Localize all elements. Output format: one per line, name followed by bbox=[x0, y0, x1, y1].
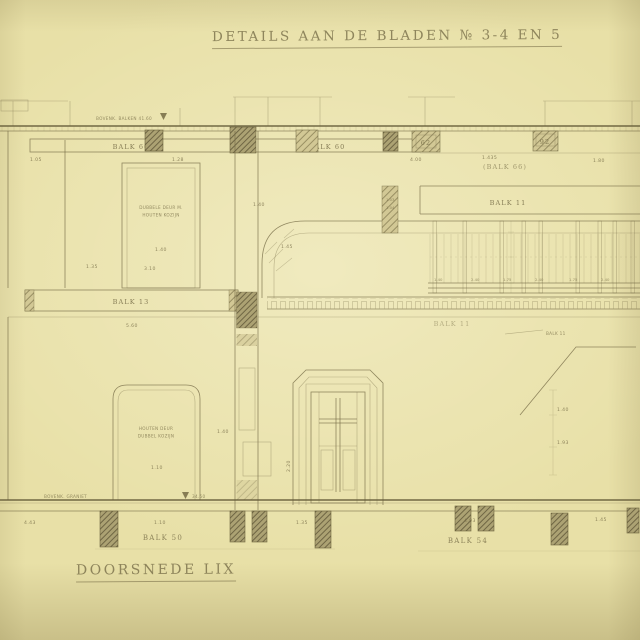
balk13-label: BALK 13 bbox=[113, 298, 150, 306]
bottom-level-value: 34.50 bbox=[192, 494, 206, 499]
dim: 4.93 bbox=[464, 518, 476, 524]
drawing-title: DETAILS AAN DE BLADEN № 3-4 EN 5 bbox=[212, 28, 562, 48]
column-hatch bbox=[237, 292, 258, 328]
balk11-wall-label: BALK 11 bbox=[434, 320, 471, 328]
dim: 2.40 bbox=[535, 277, 544, 282]
balk50-label: BALK 50 bbox=[143, 534, 183, 542]
dim: 1.40 bbox=[253, 202, 265, 208]
dim: 1.45 bbox=[281, 244, 293, 250]
lower-door-note-2: DUBBEL KOZIJN bbox=[138, 434, 175, 439]
anchor-block bbox=[230, 127, 256, 153]
column-hatch-light bbox=[237, 334, 258, 346]
dentil-band bbox=[267, 297, 640, 309]
anchor-block bbox=[296, 130, 318, 152]
right-upper-structure: BALK 11 1.03 1.04 1.40 2.40 1.75 2.40 1.… bbox=[382, 186, 640, 293]
dim: 1.28 bbox=[172, 157, 184, 163]
arch-door-inner bbox=[118, 390, 195, 500]
dim: 5.60 bbox=[126, 323, 138, 329]
dim: 2.40 bbox=[471, 277, 480, 282]
balk13-end-cap bbox=[25, 290, 34, 311]
dim-baselines bbox=[95, 549, 640, 551]
lower-left-wall: HOUTEN DEUR DUBBEL KOZIJN 1.10 1.40 bbox=[8, 317, 229, 500]
graniet-note: BOVENK. GRANIET bbox=[44, 494, 87, 499]
dim: 3.10 bbox=[144, 266, 156, 272]
dim: 2.20 bbox=[286, 460, 292, 472]
dim: 1.03 bbox=[386, 197, 395, 202]
dim: 1.40 bbox=[434, 277, 443, 282]
door-panel bbox=[343, 450, 355, 490]
dim: 1.93 bbox=[557, 440, 569, 446]
upper-door-note-1: DUBBELE DEUR M. bbox=[139, 205, 183, 210]
roof-edge-lines bbox=[0, 97, 640, 126]
section-title: DOORSNEDE LIX bbox=[76, 562, 236, 582]
block62-label: 62 bbox=[421, 139, 431, 147]
door-panel bbox=[321, 450, 333, 490]
dim: 1.40 bbox=[155, 247, 167, 253]
upper-door-note-2: HOUTEN KOZIJN bbox=[142, 213, 179, 218]
dim: 1.10 bbox=[154, 520, 166, 526]
wall-lines bbox=[8, 131, 65, 288]
lower-door-note-1: HOUTEN DEUR bbox=[139, 426, 173, 431]
dim: 1.10 bbox=[151, 465, 163, 471]
door-stiles bbox=[319, 392, 357, 503]
dentil-row bbox=[267, 298, 640, 309]
note-leader bbox=[505, 330, 543, 334]
upper-door-inner bbox=[127, 168, 195, 288]
dim: 1.75 bbox=[569, 277, 578, 282]
balk54-label: BALK 54 bbox=[448, 537, 488, 545]
dim: 4.00 bbox=[410, 157, 422, 163]
blueprint-scan: BALK 60 BALK 60 62 92 BOVENK. BALKEN 41.… bbox=[0, 0, 640, 640]
dim: 1.05 bbox=[30, 157, 42, 163]
anchor-block bbox=[383, 132, 398, 151]
section-title-text: DOORSNEDE LIX bbox=[76, 562, 236, 583]
drawing-canvas: BALK 60 BALK 60 62 92 BOVENK. BALKEN 41.… bbox=[0, 0, 640, 640]
corner-box bbox=[1, 100, 28, 111]
balk11-band-lines bbox=[420, 186, 640, 214]
ramp-outline bbox=[520, 347, 636, 415]
ramp-dim-chain bbox=[549, 390, 557, 475]
balk11-note: BALK 11 bbox=[546, 331, 566, 336]
baluster-field bbox=[428, 234, 640, 283]
column-recess bbox=[239, 368, 255, 430]
balk11-band-label: BALK 11 bbox=[490, 199, 527, 207]
dim: 1.35 bbox=[296, 520, 308, 526]
column-base-hatch bbox=[237, 480, 258, 500]
door-opening bbox=[293, 370, 383, 505]
level-marker-icon bbox=[182, 492, 189, 499]
dim: 2.40 bbox=[601, 277, 610, 282]
ground-foundation: BOVENK. GRANIET 34.50 4.43 1.10 1.35 4.9… bbox=[0, 492, 640, 551]
door-cross-rail bbox=[319, 419, 357, 423]
dim: 1.80 bbox=[593, 158, 605, 164]
dim: 1.35 bbox=[86, 264, 98, 270]
upper-left-wall: DUBBELE DEUR M. HOUTEN KOZIJN 1.40 1.35 … bbox=[8, 131, 200, 288]
beam-tick-texture bbox=[0, 127, 640, 131]
balk66-label: (BALK 66) bbox=[483, 163, 527, 171]
dim: 4.43 bbox=[24, 520, 36, 526]
dim: 1.04 bbox=[386, 205, 395, 210]
level-marker-icon bbox=[160, 113, 167, 120]
block92-label: 92 bbox=[540, 138, 550, 146]
dim: 1.45 bbox=[595, 517, 607, 523]
dim: 1.435 bbox=[482, 155, 497, 161]
lower-right-wall: BALK 11 BALK 11 1.40 1.93 bbox=[258, 317, 640, 475]
door-center-mullion bbox=[336, 398, 340, 492]
balk13-beam: BALK 13 5.60 bbox=[8, 290, 238, 329]
dim: 1.40 bbox=[557, 407, 569, 413]
anchor-block bbox=[145, 130, 163, 151]
center-column bbox=[235, 131, 271, 510]
door-frame-3 bbox=[306, 384, 370, 505]
dim: 1.75 bbox=[503, 277, 512, 282]
lower-rails bbox=[428, 283, 640, 293]
balk60-left-label: BALK 60 bbox=[113, 143, 150, 151]
column-base-box bbox=[243, 442, 271, 476]
arch-door-outline bbox=[113, 385, 200, 500]
upper-door-outline bbox=[122, 163, 200, 288]
dim: 1.40 bbox=[217, 429, 229, 435]
center-door-detail: 2.20 bbox=[286, 370, 383, 505]
top-level-note: BOVENK. BALKEN 41.60 bbox=[96, 116, 152, 121]
top-beam-structure: BALK 60 BALK 60 62 92 BOVENK. BALKEN 41.… bbox=[0, 97, 640, 171]
drawing-title-text: DETAILS AAN DE BLADEN № 3-4 EN 5 bbox=[212, 27, 562, 49]
